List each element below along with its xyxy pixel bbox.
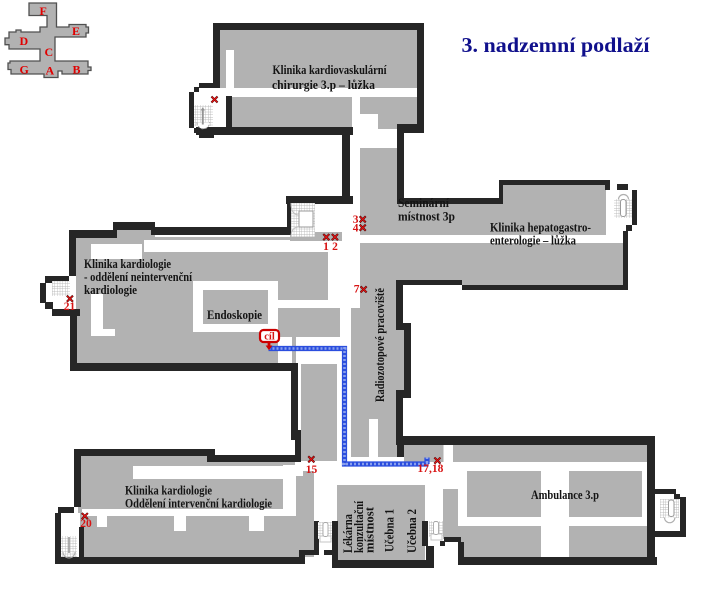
svg-text:17,18: 17,18: [418, 463, 444, 475]
svg-text:Oddělení intervenční kardiolog: Oddělení intervenční kardiologie: [125, 497, 272, 511]
svg-text:B: B: [73, 63, 81, 77]
svg-text:D: D: [20, 34, 29, 48]
svg-text:chirurgie 3.p – lůžka: chirurgie 3.p – lůžka: [272, 78, 376, 92]
svg-text:20: 20: [80, 518, 92, 530]
svg-text:Radiozotopové pracoviště: Radiozotopové pracoviště: [373, 288, 387, 402]
svg-text:Klinika kardiologie: Klinika kardiologie: [125, 484, 212, 498]
svg-text:E: E: [72, 24, 80, 38]
svg-text:Klinika hepatogastro-: Klinika hepatogastro-: [490, 221, 591, 235]
svg-text:F: F: [40, 4, 47, 18]
svg-text:- oddělení neintervenční: - oddělení neintervenční: [84, 270, 192, 284]
svg-text:Klinika kardiologie: Klinika kardiologie: [84, 257, 171, 271]
svg-text:Učebna 1: Učebna 1: [383, 509, 397, 552]
svg-text:kardiologie: kardiologie: [84, 283, 137, 297]
svg-text:2: 2: [332, 241, 338, 253]
svg-text:21: 21: [64, 301, 76, 313]
svg-text:4: 4: [353, 223, 359, 235]
svg-text:Seminární: Seminární: [398, 196, 449, 210]
svg-text:cíl: cíl: [264, 332, 275, 343]
svg-text:7: 7: [354, 284, 360, 296]
svg-text:15: 15: [306, 464, 318, 476]
svg-text:místnost 3p: místnost 3p: [398, 210, 455, 224]
svg-text:Učebna 2: Učebna 2: [405, 509, 419, 553]
svg-text:3. nadzemní podlaží: 3. nadzemní podlaží: [462, 33, 651, 57]
svg-text:C: C: [45, 45, 54, 59]
svg-text:G: G: [20, 63, 29, 77]
svg-text:Ambulance 3.p: Ambulance 3.p: [531, 488, 599, 502]
svg-text:enterologie – lůžka: enterologie – lůžka: [490, 234, 577, 248]
svg-text:Klinika kardiovaskulární: Klinika kardiovaskulární: [273, 63, 387, 77]
svg-text:Endoskopie: Endoskopie: [207, 308, 262, 322]
svg-text:1: 1: [323, 241, 329, 253]
svg-text:místnost: místnost: [363, 506, 377, 553]
svg-text:A: A: [46, 64, 55, 78]
